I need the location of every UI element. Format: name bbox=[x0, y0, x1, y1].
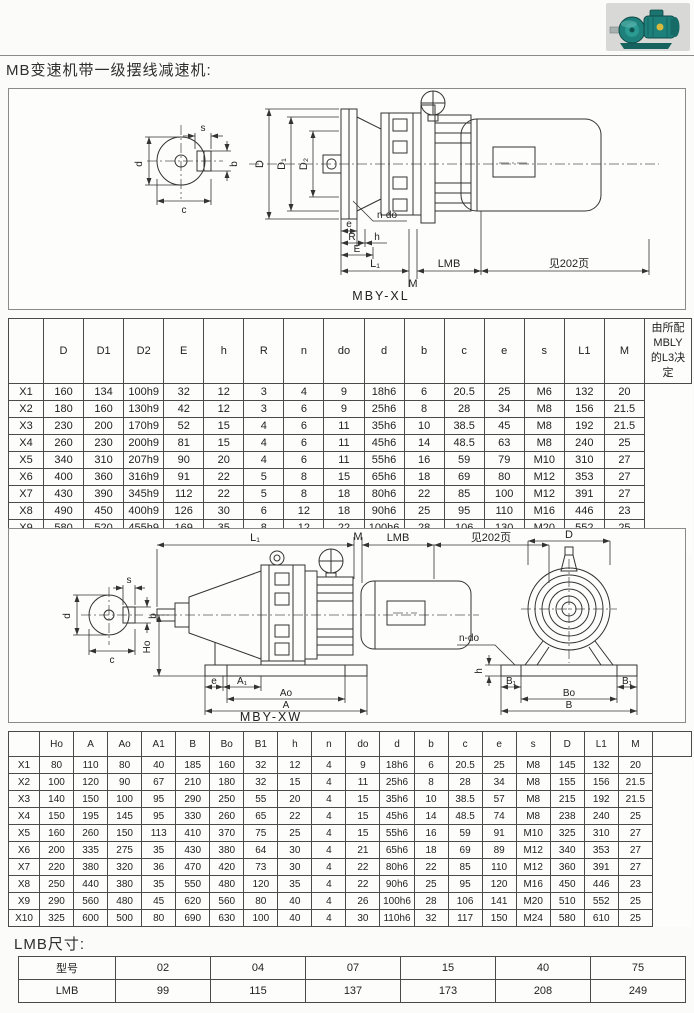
table-cell: 260 bbox=[210, 808, 244, 825]
table-cell: 120 bbox=[74, 774, 108, 791]
table-cell: 25 bbox=[618, 893, 652, 910]
table-cell: M12 bbox=[524, 486, 564, 503]
table-cell: 21 bbox=[346, 842, 380, 859]
lmb-section-title: LMB尺寸: bbox=[14, 933, 85, 954]
table-cell: 65 bbox=[244, 808, 278, 825]
table-cell: 22 bbox=[346, 859, 380, 876]
dim-label-c: c bbox=[182, 205, 187, 216]
table-cell: 10 bbox=[414, 791, 448, 808]
table-cell: 30 bbox=[278, 842, 312, 859]
table-cell: 35 bbox=[278, 876, 312, 893]
table-cell: 450 bbox=[550, 876, 584, 893]
table-cell: 137 bbox=[306, 980, 401, 1003]
table-cell: 95 bbox=[142, 791, 176, 808]
table-cell: 249 bbox=[591, 980, 686, 1003]
shaft-end-detail: s b d c bbox=[134, 123, 240, 216]
table-cell: 79 bbox=[484, 452, 524, 469]
table-cell: 275 bbox=[108, 842, 142, 859]
table-cell: 100 bbox=[40, 774, 74, 791]
table-cell: 15 bbox=[278, 774, 312, 791]
table-cell: 12 bbox=[204, 401, 244, 418]
row-label: X2 bbox=[9, 774, 40, 791]
table-cell: 55h6 bbox=[380, 825, 414, 842]
table-cell: 38.5 bbox=[448, 791, 482, 808]
table-cell: 450 bbox=[84, 503, 124, 520]
table-cell: 91 bbox=[164, 469, 204, 486]
column-header: 40 bbox=[496, 957, 591, 980]
table-cell: 21.5 bbox=[618, 774, 652, 791]
table-cell: 4 bbox=[312, 842, 346, 859]
row-label: X6 bbox=[9, 842, 40, 859]
table-cell: 160 bbox=[210, 757, 244, 774]
table-cell: 110 bbox=[484, 503, 524, 520]
table-cell: 12 bbox=[284, 503, 324, 520]
table-cell: 80h6 bbox=[364, 486, 404, 503]
table-cell: 510 bbox=[550, 893, 584, 910]
table-row: X180110804018516032124918h6620.525M81451… bbox=[9, 757, 692, 774]
table-cell: 63 bbox=[484, 435, 524, 452]
table-cell: 48.5 bbox=[444, 435, 484, 452]
table-cell: 8 bbox=[284, 486, 324, 503]
table-cell: 200h9 bbox=[124, 435, 164, 452]
table-cell: 290 bbox=[40, 893, 74, 910]
table-cell: 6 bbox=[284, 418, 324, 435]
column-header: h bbox=[278, 732, 312, 757]
gear-motor-photo-image bbox=[606, 3, 690, 51]
table-cell: 11 bbox=[324, 418, 364, 435]
table-cell: 156 bbox=[584, 774, 618, 791]
table-cell: 80 bbox=[142, 910, 176, 927]
row-label: X1 bbox=[9, 757, 40, 774]
table-cell: 57 bbox=[482, 791, 516, 808]
table-cell: 16 bbox=[404, 452, 444, 469]
table-cell: 391 bbox=[564, 486, 604, 503]
table-cell: M16 bbox=[524, 503, 564, 520]
table-cell: M6 bbox=[524, 384, 564, 401]
table-cell: 4 bbox=[312, 859, 346, 876]
table-cell: 25 bbox=[618, 808, 652, 825]
table-cell: 18 bbox=[404, 469, 444, 486]
table-cell: 310 bbox=[84, 452, 124, 469]
table-cell: 100h6 bbox=[380, 893, 414, 910]
table-cell: 34 bbox=[484, 401, 524, 418]
table-cell: 353 bbox=[584, 842, 618, 859]
table-cell: 430 bbox=[176, 842, 210, 859]
table-cell: 23 bbox=[604, 503, 644, 520]
spec-table-mby-xw: HoAAoA1BBoB1hndodbcesDL1MX18011080401851… bbox=[8, 731, 692, 927]
column-header: M bbox=[618, 732, 652, 757]
table-cell: 20 bbox=[618, 757, 652, 774]
table-cell: M10 bbox=[524, 452, 564, 469]
table-cell: 192 bbox=[584, 791, 618, 808]
table-cell: 145 bbox=[550, 757, 584, 774]
table-cell: 560 bbox=[210, 893, 244, 910]
table-cell: 430 bbox=[44, 486, 84, 503]
table-cell: 380 bbox=[210, 842, 244, 859]
table-cell: M24 bbox=[516, 910, 550, 927]
table-cell: 80 bbox=[108, 757, 142, 774]
table-cell: 40 bbox=[278, 910, 312, 927]
table-cell: 10 bbox=[404, 418, 444, 435]
table-cell: 38.5 bbox=[444, 418, 484, 435]
column-header: B bbox=[176, 732, 210, 757]
table-cell: 22 bbox=[204, 469, 244, 486]
table-cell: 36 bbox=[142, 859, 176, 876]
table-cell: 99 bbox=[116, 980, 211, 1003]
spec-table-mby-xl: DD1D2EhRndodbcesL1M由所配 MBLY 的L3决 定X11601… bbox=[8, 318, 692, 554]
row-label: X8 bbox=[9, 876, 40, 893]
table-row: X5160260150113410370752541555h6165991M10… bbox=[9, 825, 692, 842]
table-cell: 18 bbox=[324, 503, 364, 520]
table-cell: 27 bbox=[604, 486, 644, 503]
table-row: X8250440380355504801203542290h62595120M1… bbox=[9, 876, 692, 893]
table-cell: 91 bbox=[482, 825, 516, 842]
table-cell: 6 bbox=[284, 452, 324, 469]
table-cell: 59 bbox=[448, 825, 482, 842]
dim-label-M: M bbox=[408, 278, 417, 290]
table-row: X1160134100h9321234918h6620.525M613220 bbox=[9, 384, 692, 401]
table-row: X8490450400h9126306121890h62595110M16446… bbox=[9, 503, 692, 520]
table-cell: 6 bbox=[284, 435, 324, 452]
dim-label-d: d bbox=[134, 161, 145, 167]
lmb-size-table: 型号020407154075LMB99115137173208249 bbox=[18, 956, 686, 1003]
table-cell: 220 bbox=[40, 859, 74, 876]
table-cell: 290 bbox=[176, 791, 210, 808]
table-cell: 22 bbox=[278, 808, 312, 825]
dim-label-see-page: 见202页 bbox=[549, 258, 589, 270]
table-cell: 3 bbox=[244, 384, 284, 401]
table-cell: 80 bbox=[244, 893, 278, 910]
table-cell: 20 bbox=[278, 791, 312, 808]
handwheel bbox=[421, 91, 445, 121]
column-header: e bbox=[482, 732, 516, 757]
table-cell: 140 bbox=[40, 791, 74, 808]
table-cell: 117 bbox=[448, 910, 482, 927]
table-cell: 75 bbox=[244, 825, 278, 842]
table-cell: 12 bbox=[278, 757, 312, 774]
table-row: X314015010095290250552041535h61038.557M8… bbox=[9, 791, 692, 808]
dim-label-n-do: n-do bbox=[377, 210, 397, 221]
row-label: X4 bbox=[9, 435, 44, 452]
column-header: 75 bbox=[591, 957, 686, 980]
table-cell: 620 bbox=[176, 893, 210, 910]
mby-xl-drawing: s b d c D D₁ bbox=[9, 89, 685, 309]
length-dimensions: e R h E L₁ M LMB 见202页 bbox=[341, 211, 649, 290]
table-cell: 560 bbox=[74, 893, 108, 910]
table-cell: M12 bbox=[516, 859, 550, 876]
table-cell: 185 bbox=[176, 757, 210, 774]
table-cell: 134 bbox=[84, 384, 124, 401]
column-header: E bbox=[164, 319, 204, 384]
motor-outline bbox=[461, 119, 601, 211]
table-cell: 16 bbox=[414, 825, 448, 842]
column-header: B1 bbox=[244, 732, 278, 757]
table-cell: 100h9 bbox=[124, 384, 164, 401]
table-cell: 690 bbox=[176, 910, 210, 927]
dim-label-h: h bbox=[374, 232, 380, 243]
table-cell: 90h6 bbox=[364, 503, 404, 520]
table-cell: 20 bbox=[604, 384, 644, 401]
table-cell: M16 bbox=[516, 876, 550, 893]
table-cell: 22 bbox=[346, 876, 380, 893]
dim-label-D: D bbox=[565, 529, 573, 541]
table-cell: 8 bbox=[284, 469, 324, 486]
lifting-eye bbox=[270, 551, 284, 565]
header-divider bbox=[0, 55, 694, 56]
reducer-end-view: D n-do h B₁ B₁ Bo B bbox=[457, 529, 637, 715]
table-cell: 40 bbox=[278, 893, 312, 910]
table-cell: 550 bbox=[176, 876, 210, 893]
table-cell: 25h6 bbox=[380, 774, 414, 791]
table-cell: 4 bbox=[244, 452, 284, 469]
table-cell: M8 bbox=[524, 435, 564, 452]
table-cell: 440 bbox=[74, 876, 108, 893]
table-side-note: 由所配 MBLY 的L3决 定 bbox=[645, 319, 692, 384]
table-cell: 240 bbox=[564, 435, 604, 452]
table-cell: 500 bbox=[108, 910, 142, 927]
table-cell: 126 bbox=[164, 503, 204, 520]
table-cell: 20.5 bbox=[444, 384, 484, 401]
table-cell: 4 bbox=[312, 791, 346, 808]
column-header: Ho bbox=[40, 732, 74, 757]
table-cell: 400h9 bbox=[124, 503, 164, 520]
column-header: 02 bbox=[116, 957, 211, 980]
table-cell: 141 bbox=[482, 893, 516, 910]
table-cell: 120 bbox=[482, 876, 516, 893]
table-cell: 27 bbox=[604, 452, 644, 469]
table-cell: 95 bbox=[444, 503, 484, 520]
table-cell: 210 bbox=[176, 774, 210, 791]
table-cell: 4 bbox=[312, 876, 346, 893]
table-cell: 446 bbox=[584, 876, 618, 893]
row-label: X1 bbox=[9, 384, 44, 401]
table-cell: 390 bbox=[84, 486, 124, 503]
row-label: X6 bbox=[9, 469, 44, 486]
table-cell: 4 bbox=[312, 808, 346, 825]
table-cell: 180 bbox=[210, 774, 244, 791]
table-cell: 45 bbox=[142, 893, 176, 910]
column-header: c bbox=[448, 732, 482, 757]
table-cell: 21.5 bbox=[604, 401, 644, 418]
table-cell: 215 bbox=[550, 791, 584, 808]
table-cell: 470 bbox=[176, 859, 210, 876]
table-row: X21001209067210180321541125h682834M81551… bbox=[9, 774, 692, 791]
table-cell: 11 bbox=[346, 774, 380, 791]
column-header: c bbox=[444, 319, 484, 384]
table-cell: 208 bbox=[496, 980, 591, 1003]
table-cell: 9 bbox=[324, 401, 364, 418]
reducer-side-view: n-do bbox=[249, 91, 659, 223]
table-cell: 35h6 bbox=[364, 418, 404, 435]
table-cell: 69 bbox=[444, 469, 484, 486]
table-cell: 260 bbox=[74, 825, 108, 842]
row-label: X5 bbox=[9, 825, 40, 842]
table-cell: 11 bbox=[324, 435, 364, 452]
table-cell: 28 bbox=[414, 893, 448, 910]
column-header: R bbox=[244, 319, 284, 384]
dim-label-B1-right: B₁ bbox=[622, 676, 633, 687]
table-cell: 4 bbox=[244, 435, 284, 452]
table-row: X7430390345h911222581880h62285100M123912… bbox=[9, 486, 692, 503]
table-row: X415019514595330260652241545h61448.574M8… bbox=[9, 808, 692, 825]
table-cell: M10 bbox=[516, 825, 550, 842]
table-row: X620033527535430380643042165h6186989M123… bbox=[9, 842, 692, 859]
dim-label-e: e bbox=[346, 219, 352, 230]
table-cell: 95 bbox=[448, 876, 482, 893]
table-cell: 89 bbox=[482, 842, 516, 859]
table-cell: 25 bbox=[484, 384, 524, 401]
table-cell: 30 bbox=[278, 859, 312, 876]
column-header: Bo bbox=[210, 732, 244, 757]
table-cell: 20.5 bbox=[448, 757, 482, 774]
table-cell: 446 bbox=[564, 503, 604, 520]
table-cell: 45 bbox=[484, 418, 524, 435]
table-cell: 30 bbox=[204, 503, 244, 520]
table-cell: 410 bbox=[176, 825, 210, 842]
table-cell: 230 bbox=[44, 418, 84, 435]
table-cell: M8 bbox=[516, 808, 550, 825]
table-cell: 30 bbox=[346, 910, 380, 927]
table-cell: 27 bbox=[618, 859, 652, 876]
table-cell: 5 bbox=[244, 469, 284, 486]
column-header: do bbox=[324, 319, 364, 384]
table-cell: 6 bbox=[414, 757, 448, 774]
table-cell: 156 bbox=[564, 401, 604, 418]
table-cell: 59 bbox=[444, 452, 484, 469]
table-cell: 200 bbox=[84, 418, 124, 435]
dim-label-Bo: Bo bbox=[563, 688, 576, 699]
table-cell: 6 bbox=[404, 384, 444, 401]
header-row: DD1D2EhRndodbcesL1M由所配 MBLY 的L3决 定 bbox=[9, 319, 692, 384]
dim-label-L1: L₁ bbox=[370, 258, 380, 270]
column-header bbox=[9, 319, 44, 384]
table-cell: 120 bbox=[244, 876, 278, 893]
table-cell: 40 bbox=[142, 757, 176, 774]
table-cell: 110h6 bbox=[380, 910, 414, 927]
table-cell: 380 bbox=[108, 876, 142, 893]
header-row: 型号020407154075 bbox=[19, 957, 686, 980]
table-cell: 100 bbox=[484, 486, 524, 503]
column-header: s bbox=[516, 732, 550, 757]
handwheel bbox=[319, 549, 343, 577]
diagram-box-mby-xl: s b d c D D₁ bbox=[8, 88, 686, 310]
table-cell: 145 bbox=[108, 808, 142, 825]
column-header: 型号 bbox=[19, 957, 116, 980]
column-header: d bbox=[380, 732, 414, 757]
table-cell: 150 bbox=[40, 808, 74, 825]
table-side-note bbox=[653, 732, 692, 757]
table-cell: 360 bbox=[84, 469, 124, 486]
table-cell: 630 bbox=[210, 910, 244, 927]
table-cell: 55h6 bbox=[364, 452, 404, 469]
column-header: D bbox=[550, 732, 584, 757]
table-cell: 90 bbox=[164, 452, 204, 469]
table-cell: 90 bbox=[108, 774, 142, 791]
mby-xw-drawing: s b d c L₁ M LMB 见202页 bbox=[9, 529, 685, 722]
column-header bbox=[9, 732, 40, 757]
table-cell: 26 bbox=[346, 893, 380, 910]
row-label: X3 bbox=[9, 791, 40, 808]
table-cell: 25 bbox=[482, 757, 516, 774]
page-title: MB变速机带一级摆线减速机: bbox=[6, 59, 212, 80]
column-header: L1 bbox=[564, 319, 604, 384]
table-cell: M8 bbox=[516, 774, 550, 791]
dim-label-B1-left: B₁ bbox=[506, 676, 517, 687]
table-cell: 316h9 bbox=[124, 469, 164, 486]
table-cell: 25 bbox=[278, 825, 312, 842]
table-cell: 480 bbox=[210, 876, 244, 893]
column-header: M bbox=[604, 319, 644, 384]
table-cell: 15 bbox=[204, 435, 244, 452]
table-cell: 35 bbox=[142, 876, 176, 893]
table-row: X6400360316h99122581565h6186980M1235327 bbox=[9, 469, 692, 486]
table-cell: 34 bbox=[482, 774, 516, 791]
table-cell: 45h6 bbox=[364, 435, 404, 452]
table-cell: 80 bbox=[484, 469, 524, 486]
column-header: d bbox=[364, 319, 404, 384]
table-cell: 32 bbox=[244, 774, 278, 791]
table-cell: 4 bbox=[312, 893, 346, 910]
table-cell: 32 bbox=[244, 757, 278, 774]
table-cell: 180 bbox=[44, 401, 84, 418]
table-cell: 21.5 bbox=[604, 418, 644, 435]
column-header: D bbox=[44, 319, 84, 384]
table-cell: 100 bbox=[108, 791, 142, 808]
table-cell: M8 bbox=[524, 418, 564, 435]
table-cell: 25 bbox=[414, 876, 448, 893]
table-cell: 150 bbox=[108, 825, 142, 842]
table-cell: 480 bbox=[108, 893, 142, 910]
table-cell: 100 bbox=[244, 910, 278, 927]
table-cell: 9 bbox=[346, 757, 380, 774]
table-cell: 74 bbox=[482, 808, 516, 825]
table-cell: 150 bbox=[74, 791, 108, 808]
table-cell: 106 bbox=[448, 893, 482, 910]
table-cell: 85 bbox=[448, 859, 482, 876]
dim-label-see-page: 见202页 bbox=[471, 532, 511, 544]
table-cell: 4 bbox=[244, 418, 284, 435]
table-cell: 335 bbox=[74, 842, 108, 859]
column-header: 04 bbox=[211, 957, 306, 980]
dim-label-L1: L₁ bbox=[250, 532, 260, 544]
table-cell: 32 bbox=[164, 384, 204, 401]
table-cell: 5 bbox=[244, 486, 284, 503]
table-row: X722038032036470420733042280h62285110M12… bbox=[9, 859, 692, 876]
table-cell: 22 bbox=[414, 859, 448, 876]
table-cell: 8 bbox=[404, 401, 444, 418]
table-cell: 170h9 bbox=[124, 418, 164, 435]
column-header: s bbox=[524, 319, 564, 384]
table-cell: 320 bbox=[108, 859, 142, 876]
dim-label-e: e bbox=[211, 676, 217, 687]
table-cell: 85 bbox=[444, 486, 484, 503]
column-header: A1 bbox=[142, 732, 176, 757]
table-cell: 160 bbox=[84, 401, 124, 418]
table-cell: 250 bbox=[40, 876, 74, 893]
dim-label-d: d bbox=[62, 613, 73, 619]
header-row: HoAAoA1BBoB1hndodbcesDL1M bbox=[9, 732, 692, 757]
table-cell: 95 bbox=[142, 808, 176, 825]
table-row: X2180160130h9421236925h682834M815621.5 bbox=[9, 401, 692, 418]
column-header: h bbox=[204, 319, 244, 384]
table-cell: 20 bbox=[204, 452, 244, 469]
table-cell: 132 bbox=[564, 384, 604, 401]
table-cell: 25 bbox=[618, 910, 652, 927]
table-cell: 23 bbox=[618, 876, 652, 893]
table-cell: 64 bbox=[244, 842, 278, 859]
table-row: X4260230200h98115461145h61448.563M824025 bbox=[9, 435, 692, 452]
table-cell: 90h6 bbox=[380, 876, 414, 893]
